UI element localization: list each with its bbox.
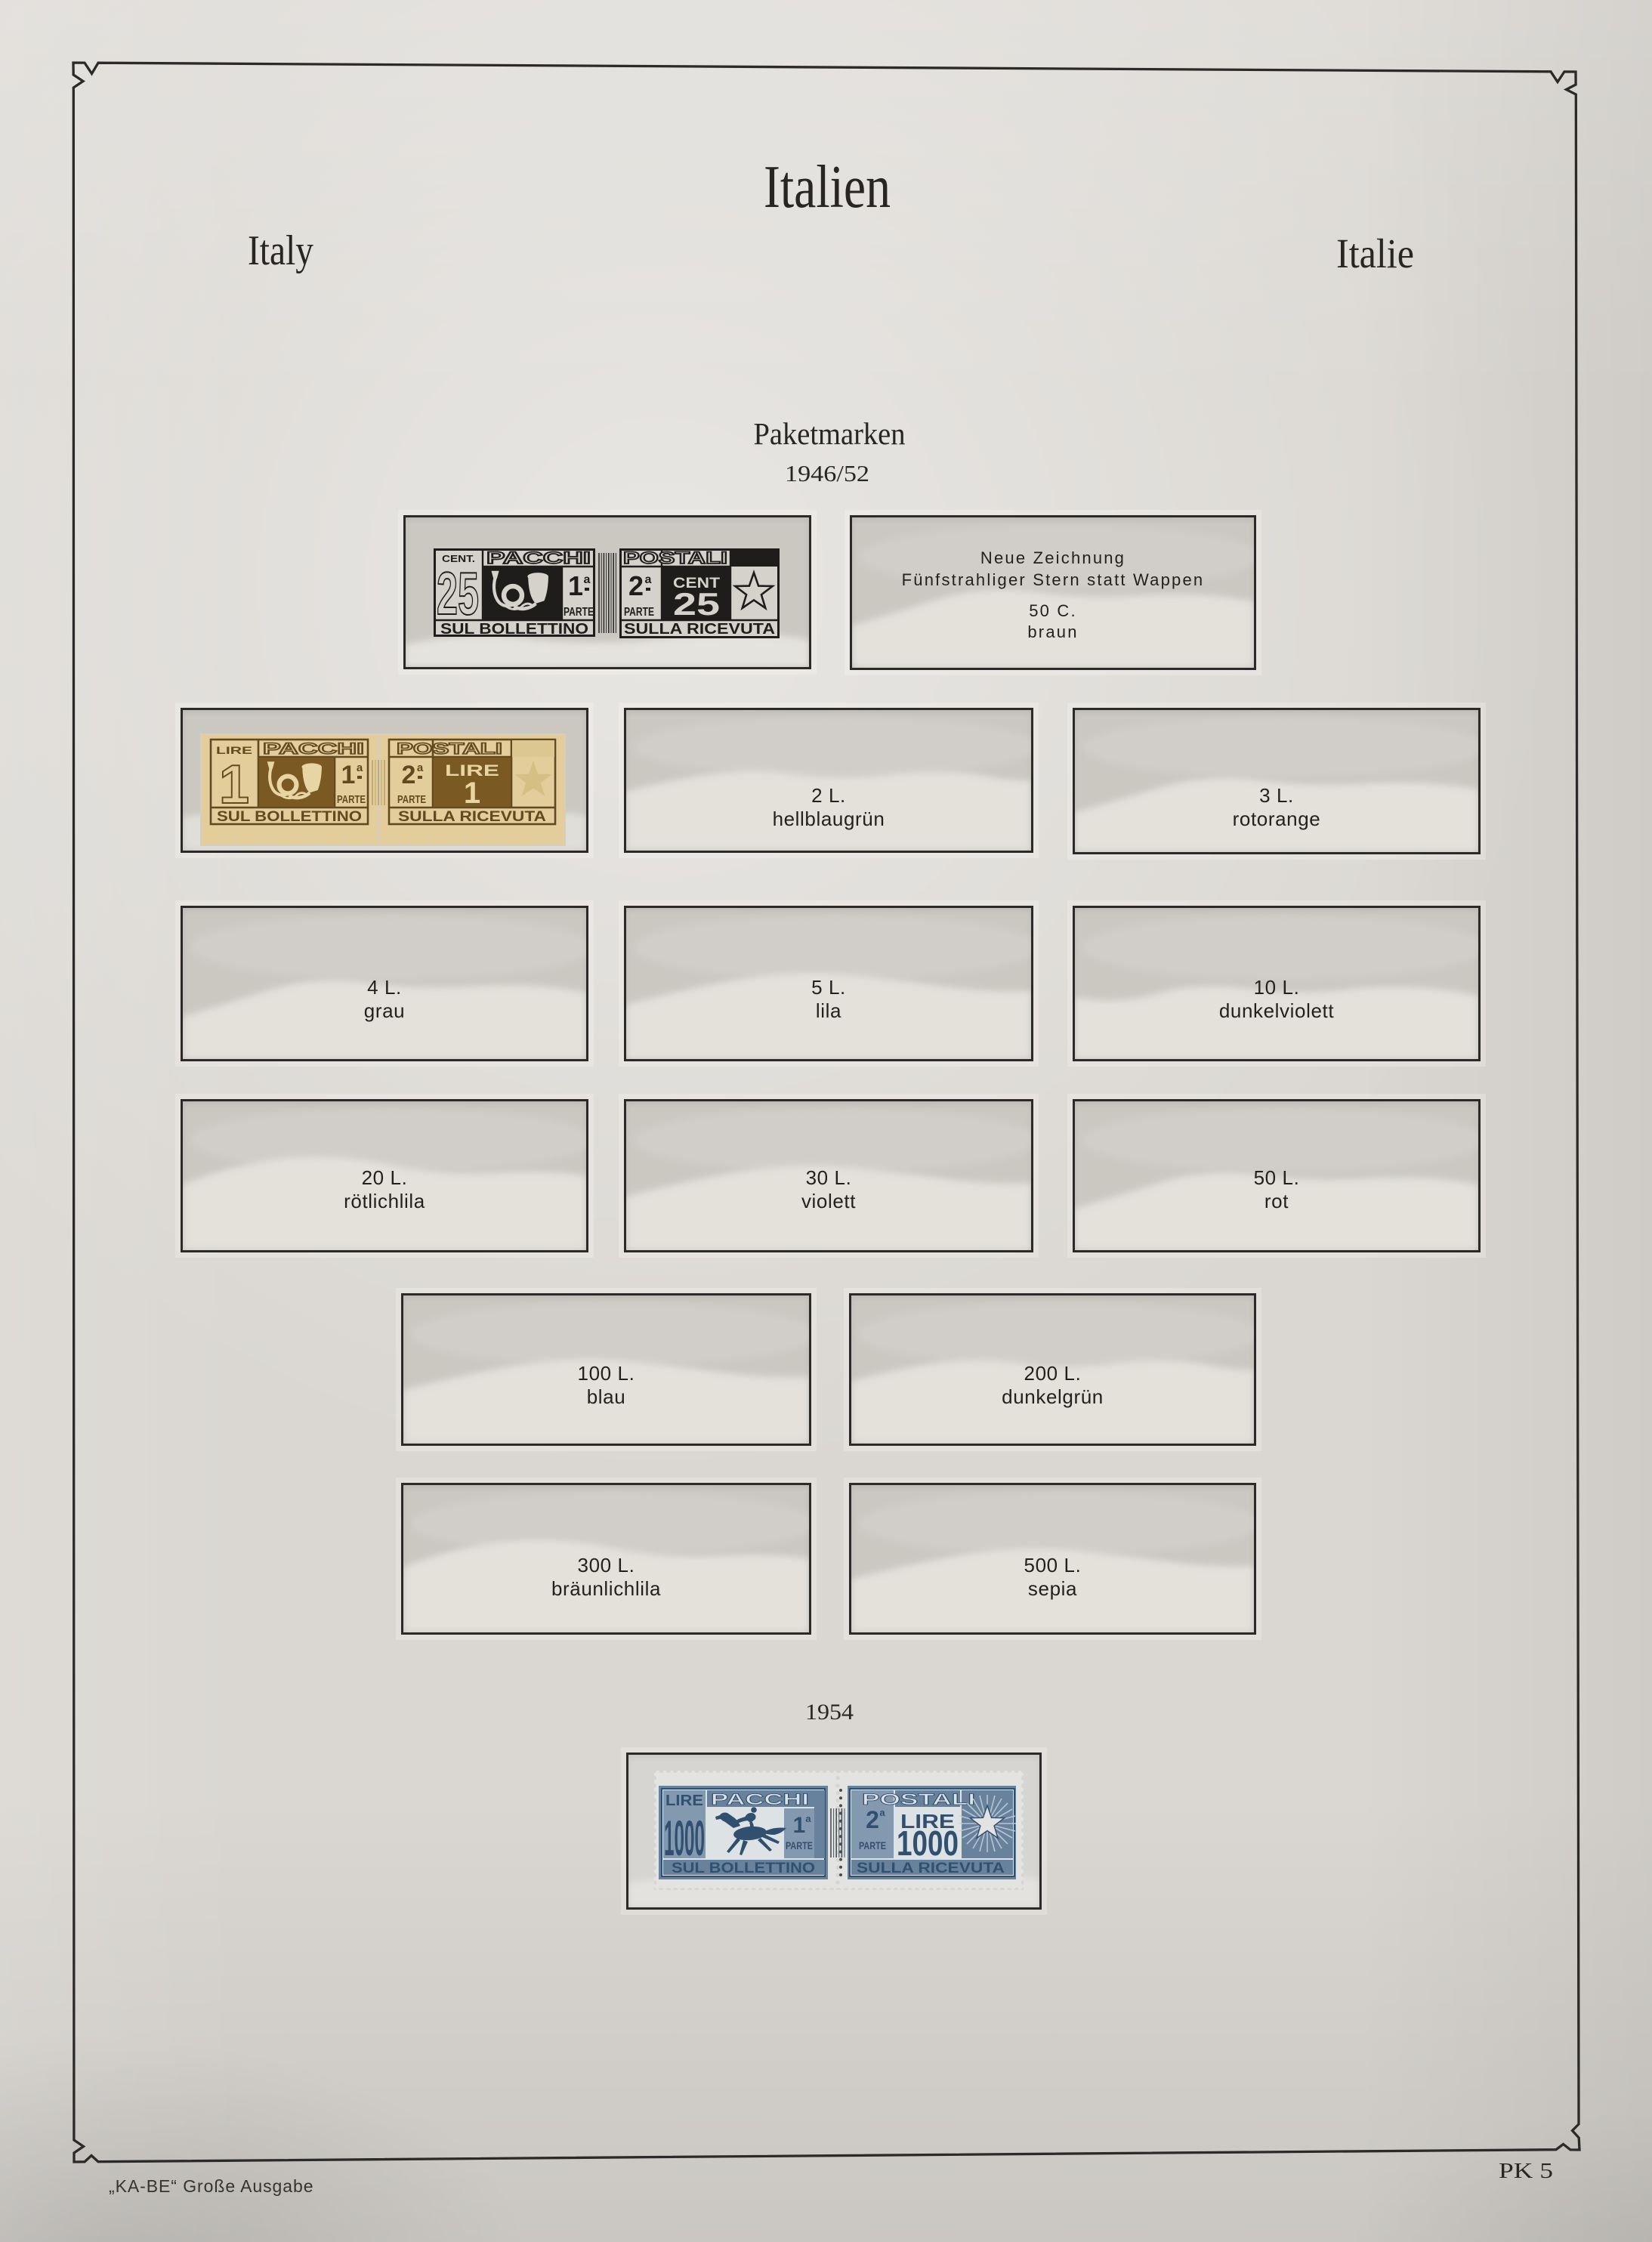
svg-text:1: 1 [464, 777, 480, 810]
svg-text:1: 1 [341, 761, 356, 789]
svg-text:1954: 1954 [805, 1700, 854, 1725]
svg-text:2: 2 [628, 570, 644, 601]
svg-text:SUL BOLLETTINO: SUL BOLLETTINO [440, 621, 588, 638]
svg-text:SULLA RICEVUTA: SULLA RICEVUTA [398, 809, 546, 825]
svg-text:PACCHI: PACCHI [711, 1791, 809, 1808]
svg-text:SUL BOLLETTINO: SUL BOLLETTINO [217, 809, 362, 825]
svg-text:2: 2 [402, 761, 416, 789]
svg-text:SUL BOLLETTINO: SUL BOLLETTINO [672, 1861, 815, 1876]
svg-text:PACCHI: PACCHI [486, 548, 591, 567]
svg-text:„KA-BE“ Große Ausgabe: „KA-BE“ Große Ausgabe [109, 2176, 314, 2196]
svg-text:Italien: Italien [764, 153, 891, 221]
svg-text:PARTE: PARTE [786, 1839, 813, 1851]
svg-text:1: 1 [219, 755, 249, 815]
svg-text:PARTE: PARTE [624, 606, 654, 619]
svg-text:PARTE: PARTE [859, 1839, 886, 1851]
svg-text:POSTALI: POSTALI [623, 548, 727, 567]
svg-text:1: 1 [568, 570, 583, 601]
svg-text:25: 25 [673, 586, 720, 622]
svg-text:2: 2 [866, 1806, 879, 1833]
svg-text:25: 25 [437, 560, 479, 627]
svg-text:Italy: Italy [248, 227, 313, 274]
svg-text:a: a [879, 1807, 885, 1818]
svg-text:a: a [417, 761, 424, 774]
svg-text:1000: 1000 [897, 1824, 959, 1863]
svg-text:POSTALI: POSTALI [397, 740, 502, 758]
svg-text:Italie: Italie [1336, 230, 1414, 276]
svg-text:1: 1 [793, 1813, 806, 1838]
svg-text:1000: 1000 [664, 1810, 705, 1866]
svg-text:PARTE: PARTE [564, 606, 594, 619]
svg-text:a: a [645, 573, 652, 586]
svg-text:a: a [805, 1813, 811, 1824]
svg-text:Paketmarken: Paketmarken [754, 416, 906, 451]
svg-text:PARTE: PARTE [397, 793, 426, 806]
svg-text:LIRE: LIRE [665, 1793, 703, 1809]
svg-text:1946/52: 1946/52 [785, 460, 869, 486]
svg-text:SULLA RICEVUTA: SULLA RICEVUTA [624, 621, 775, 638]
svg-text:PARTE: PARTE [337, 793, 366, 806]
svg-text:PK 5: PK 5 [1499, 2159, 1553, 2183]
svg-text:SULLA RICEVUTA: SULLA RICEVUTA [857, 1861, 1005, 1876]
svg-text:PACCHI: PACCHI [263, 740, 364, 758]
svg-text:a: a [584, 573, 591, 586]
svg-text:a: a [357, 761, 363, 774]
